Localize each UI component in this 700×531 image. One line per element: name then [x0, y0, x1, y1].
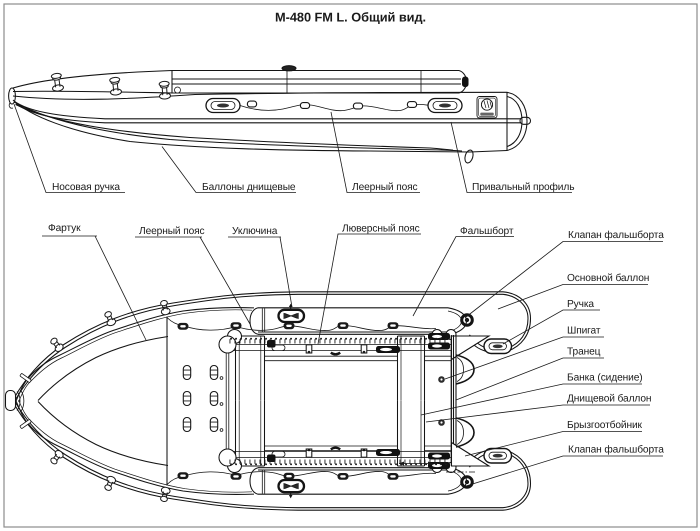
svg-text:Основной баллон: Основной баллон — [567, 273, 649, 284]
svg-text:Днищевой баллон: Днищевой баллон — [567, 394, 651, 405]
svg-text:Клапан фальшборта: Клапан фальшборта — [568, 230, 664, 241]
svg-text:Люверсный пояс: Люверсный пояс — [342, 224, 420, 235]
svg-text:Уключина: Уключина — [232, 226, 278, 237]
svg-text:Баллоны днищевые: Баллоны днищевые — [202, 182, 296, 193]
svg-text:Транец: Транец — [567, 347, 601, 358]
svg-text:Ручка: Ручка — [567, 299, 594, 310]
svg-text:Шпигат: Шпигат — [567, 326, 601, 337]
svg-text:М-480 FM L. Общий вид.: М-480 FM L. Общий вид. — [275, 10, 426, 25]
svg-text:Леерный пояс: Леерный пояс — [352, 182, 418, 193]
svg-text:Банка (сидение): Банка (сидение) — [567, 373, 643, 384]
svg-text:Клапан фальшборта: Клапан фальшборта — [568, 445, 664, 456]
svg-text:Носовая ручка: Носовая ручка — [52, 182, 120, 193]
svg-text:Привальный профиль: Привальный профиль — [472, 182, 574, 193]
svg-text:Леерный пояс: Леерный пояс — [139, 226, 205, 237]
svg-text:Брызгоотбойник: Брызгоотбойник — [567, 420, 643, 431]
svg-text:Фартук: Фартук — [48, 223, 81, 234]
svg-text:Фальшборт: Фальшборт — [460, 226, 514, 237]
